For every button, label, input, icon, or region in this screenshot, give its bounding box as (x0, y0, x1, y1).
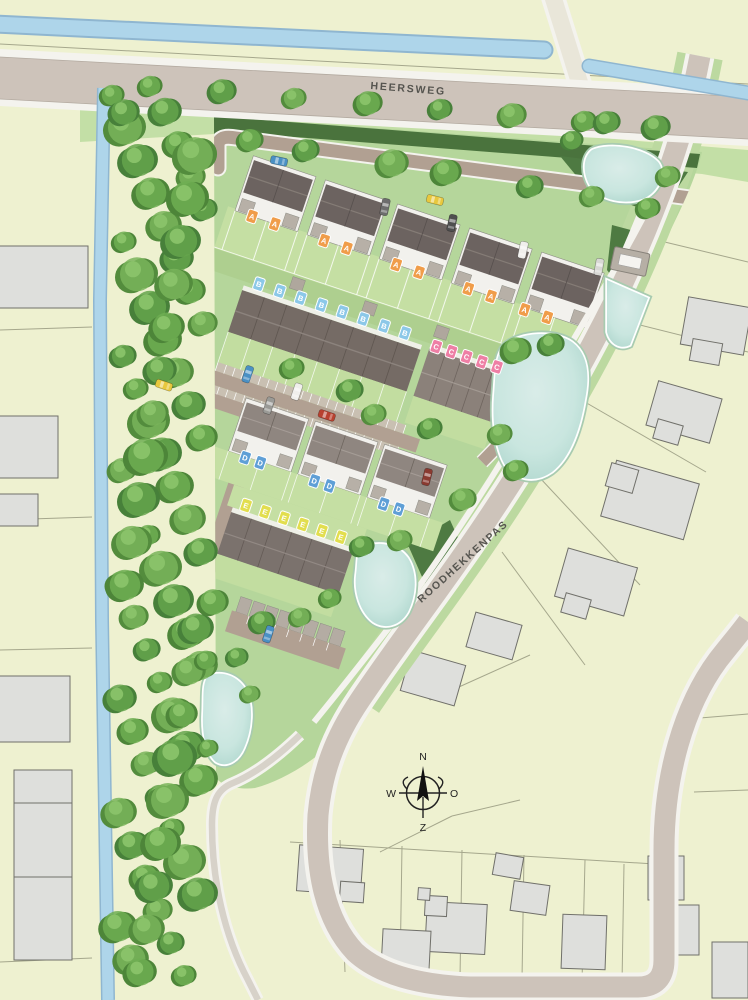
tree-highlight (323, 591, 332, 600)
existing-house (510, 881, 550, 916)
compass-letter-south: Z (420, 822, 427, 834)
tree-highlight (109, 801, 123, 815)
tree-highlight (199, 653, 208, 662)
tree-highlight (230, 650, 239, 659)
tree-highlight (115, 102, 127, 114)
tree-highlight (114, 573, 128, 587)
tree-highlight (127, 148, 142, 163)
tree-highlight (137, 918, 151, 932)
existing-house (561, 914, 607, 970)
tree-highlight (188, 768, 202, 782)
tree-highlight (179, 661, 192, 674)
existing-house (418, 888, 431, 901)
tree-highlight (214, 82, 225, 93)
tree-highlight (179, 394, 192, 407)
tree-highlight (164, 475, 178, 489)
tree-highlight (144, 403, 156, 415)
tree-highlight (114, 461, 125, 472)
site-plan-page: AAAAAAAAAABBBBBBBBCCCCCDDDDDDEEEEEE HEER… (0, 0, 748, 1000)
tree-highlight (162, 743, 179, 760)
tree-highlight (110, 688, 123, 701)
existing-building (0, 246, 88, 308)
site-plan-map: AAAAAAAAAABBBBBBBBCCCCCDDDDDDEEEEEE HEER… (0, 0, 748, 1000)
tree-highlight (107, 915, 121, 929)
tree-highlight (195, 314, 206, 325)
tree-highlight (293, 610, 302, 619)
tree-highlight (124, 721, 136, 733)
existing-house (339, 881, 364, 903)
tree-highlight (143, 78, 153, 88)
tree-highlight (149, 555, 165, 571)
tree-highlight (509, 462, 519, 472)
canal-west (100, 88, 108, 1000)
existing-building (0, 494, 38, 526)
tree-highlight (182, 141, 199, 158)
tree-highlight (493, 426, 503, 436)
tree-highlight (641, 200, 651, 210)
tree-highlight (139, 295, 154, 310)
tree-highlight (423, 420, 433, 430)
tree-highlight (173, 704, 185, 716)
tree-highlight (254, 614, 264, 624)
tree-highlight (285, 360, 295, 370)
existing-building (0, 416, 58, 478)
tree-highlight (298, 142, 308, 152)
tree-highlight (204, 592, 216, 604)
tree-highlight (543, 336, 553, 346)
tree-highlight (138, 754, 149, 765)
tree-highlight (150, 360, 163, 373)
tree-highlight (163, 272, 177, 286)
tree-highlight (342, 382, 352, 392)
tree-highlight (504, 106, 515, 117)
tree-highlight (117, 234, 127, 244)
compass-letter-north: N (419, 751, 427, 763)
tree-highlight (565, 133, 574, 142)
tree-highlight (186, 617, 200, 631)
tree-highlight (242, 132, 252, 142)
tree-highlight (202, 742, 210, 750)
tree-highlight (661, 168, 671, 178)
tree-highlight (154, 214, 168, 228)
tree-highlight (125, 261, 141, 277)
tree-highlight (287, 90, 297, 100)
tree-highlight (599, 114, 609, 124)
tree-highlight (433, 101, 443, 111)
tree-highlight (126, 608, 137, 619)
tree-highlight (170, 229, 185, 244)
tree-highlight (193, 428, 205, 440)
tree-highlight (176, 185, 192, 201)
tree-highlight (121, 948, 135, 962)
tree-highlight (153, 674, 163, 684)
existing-house (492, 853, 523, 880)
tree-highlight (244, 688, 252, 696)
tree-highlight (127, 486, 143, 502)
tree-highlight (115, 347, 125, 357)
tree-highlight (163, 934, 173, 944)
tree-highlight (178, 508, 192, 522)
tree-highlight (585, 188, 595, 198)
tree-highlight (648, 118, 659, 129)
tree-highlight (577, 113, 587, 123)
tree-highlight (122, 834, 135, 847)
tree-highlight (143, 874, 157, 888)
tree-highlight (177, 967, 187, 977)
tree-highlight (355, 538, 365, 548)
compass-letter-east: O (450, 788, 458, 800)
tree-highlight (150, 831, 165, 846)
tree-highlight (163, 588, 178, 603)
compass-letter-west: W (386, 788, 396, 800)
tree-highlight (187, 881, 202, 896)
existing-building (0, 676, 70, 742)
tree-highlight (155, 101, 168, 114)
existing-house (689, 339, 722, 366)
tree-highlight (129, 381, 139, 391)
tree-highlight (382, 153, 395, 166)
existing-building-long (14, 770, 72, 960)
tree-highlight (507, 340, 519, 352)
tree-highlight (522, 178, 532, 188)
tree-highlight (437, 162, 449, 174)
tree-highlight (157, 316, 171, 330)
tree-highlight (105, 87, 115, 97)
tree-highlight (360, 94, 371, 105)
tree-highlight (139, 641, 149, 651)
tree-highlight (121, 530, 136, 545)
tree-highlight (133, 442, 150, 459)
tree-highlight (191, 541, 204, 554)
tree-highlight (455, 491, 465, 501)
tree-highlight (140, 181, 154, 195)
tree-highlight (130, 962, 143, 975)
tree-highlight (367, 406, 377, 416)
tree-highlight (393, 532, 403, 542)
existing-house (712, 942, 748, 998)
tree-highlight (156, 787, 172, 803)
